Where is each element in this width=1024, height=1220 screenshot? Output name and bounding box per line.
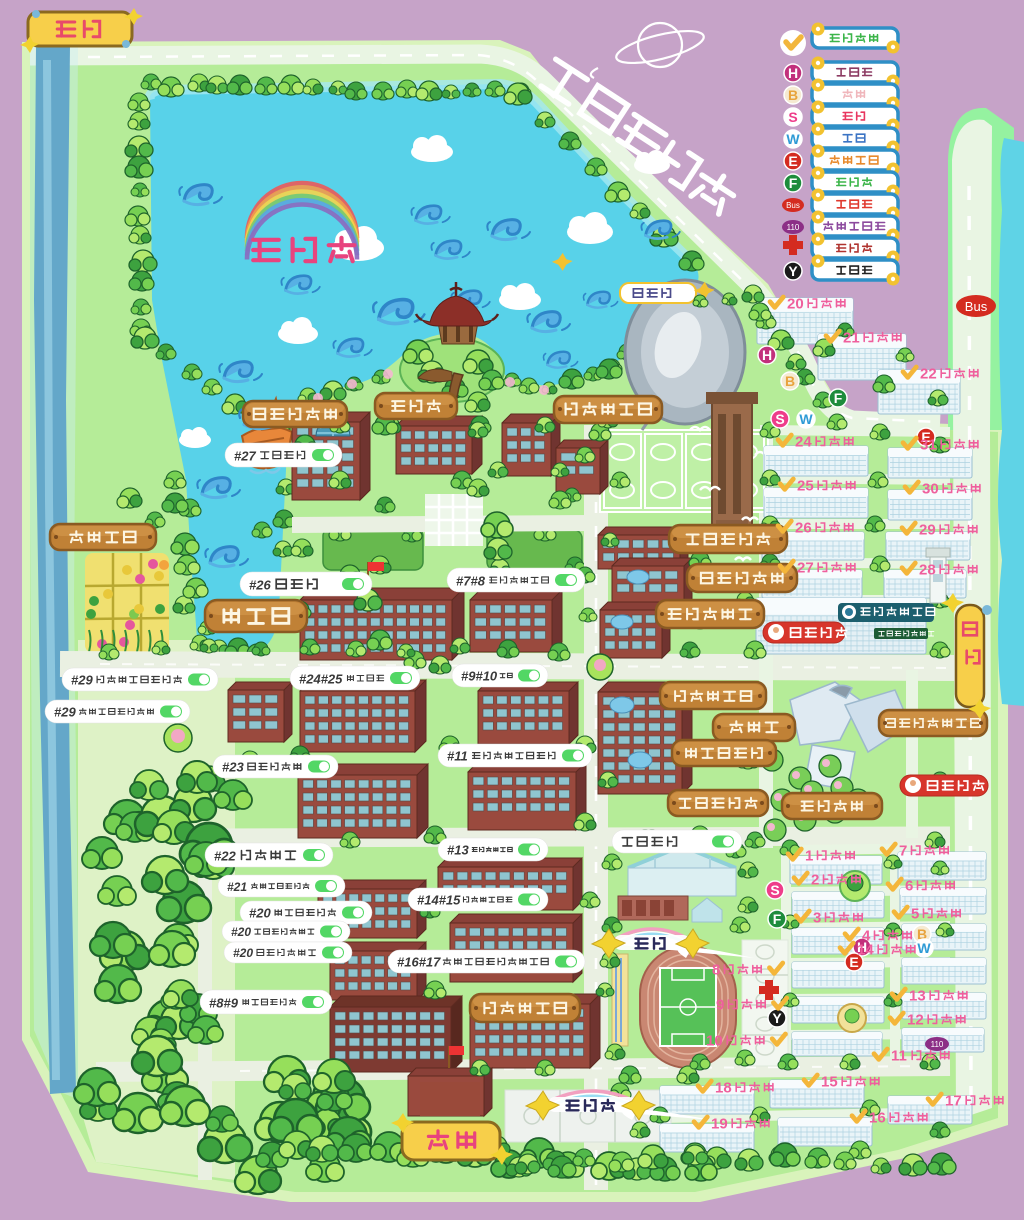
svg-text:#9#10: #9#10 xyxy=(461,669,498,684)
svg-text:Bus: Bus xyxy=(965,299,988,314)
svg-text:#26: #26 xyxy=(249,577,271,592)
svg-text:11: 11 xyxy=(891,1047,907,1064)
svg-text:22: 22 xyxy=(920,365,937,382)
svg-text:6: 6 xyxy=(905,877,913,894)
svg-text:#20: #20 xyxy=(231,925,251,939)
svg-text:E: E xyxy=(788,153,797,169)
svg-text:30: 30 xyxy=(922,480,939,497)
svg-text:13: 13 xyxy=(909,987,926,1004)
svg-text:29: 29 xyxy=(919,521,936,538)
svg-text:#23: #23 xyxy=(222,760,244,775)
svg-text:25: 25 xyxy=(797,477,814,494)
svg-text:110: 110 xyxy=(931,1040,944,1049)
svg-text:28: 28 xyxy=(919,561,936,578)
svg-text:F: F xyxy=(789,175,798,191)
svg-text:H: H xyxy=(762,347,772,363)
svg-text:S: S xyxy=(788,109,797,125)
svg-text:26: 26 xyxy=(795,519,812,536)
svg-text:15: 15 xyxy=(821,1073,838,1090)
svg-text:16: 16 xyxy=(869,1109,886,1126)
svg-text:#29: #29 xyxy=(71,673,93,688)
svg-text:#21: #21 xyxy=(227,880,247,894)
svg-text:2: 2 xyxy=(811,871,819,888)
svg-text:#8#9: #8#9 xyxy=(209,995,239,1010)
svg-text:#13: #13 xyxy=(447,843,469,858)
svg-text:17: 17 xyxy=(945,1092,962,1109)
svg-text:W: W xyxy=(786,131,800,147)
svg-text:10: 10 xyxy=(706,1032,723,1049)
svg-text:14: 14 xyxy=(857,941,874,958)
svg-text:18: 18 xyxy=(715,1079,732,1096)
svg-text:20: 20 xyxy=(787,295,804,312)
svg-text:8: 8 xyxy=(712,961,720,978)
svg-text:12: 12 xyxy=(907,1011,924,1028)
svg-text:7: 7 xyxy=(899,842,907,859)
svg-text:W: W xyxy=(799,411,813,427)
svg-text:19: 19 xyxy=(711,1115,728,1132)
svg-text:F: F xyxy=(773,911,782,927)
svg-text:Y: Y xyxy=(788,263,798,279)
svg-text:Y: Y xyxy=(772,1010,782,1026)
svg-text:S: S xyxy=(770,882,779,898)
svg-text:#14#15: #14#15 xyxy=(417,893,461,908)
svg-text:#20: #20 xyxy=(233,946,253,960)
svg-text:Bus: Bus xyxy=(786,201,800,210)
svg-text:24: 24 xyxy=(795,433,812,450)
svg-text:#16#17: #16#17 xyxy=(397,955,441,970)
svg-text:#7#8: #7#8 xyxy=(456,573,486,588)
svg-text:S: S xyxy=(775,411,784,427)
svg-text:5: 5 xyxy=(911,905,919,922)
svg-text:#27: #27 xyxy=(234,448,256,463)
svg-text:B: B xyxy=(788,87,798,103)
svg-text:110: 110 xyxy=(787,223,800,232)
svg-text:#24#25: #24#25 xyxy=(299,671,343,686)
svg-text:9: 9 xyxy=(716,996,724,1013)
svg-text:#22: #22 xyxy=(214,848,236,863)
svg-text:#20: #20 xyxy=(249,906,271,921)
svg-text:27: 27 xyxy=(797,559,814,576)
svg-text:21: 21 xyxy=(843,329,860,346)
svg-text:#29: #29 xyxy=(54,705,76,720)
svg-text:1: 1 xyxy=(805,847,813,864)
svg-text:3: 3 xyxy=(813,909,821,926)
svg-text:31: 31 xyxy=(920,436,937,453)
svg-text:#11: #11 xyxy=(447,749,468,764)
svg-text:W: W xyxy=(917,940,931,956)
svg-text:B: B xyxy=(785,373,795,389)
svg-text:H: H xyxy=(788,65,798,81)
svg-text:F: F xyxy=(834,390,843,406)
